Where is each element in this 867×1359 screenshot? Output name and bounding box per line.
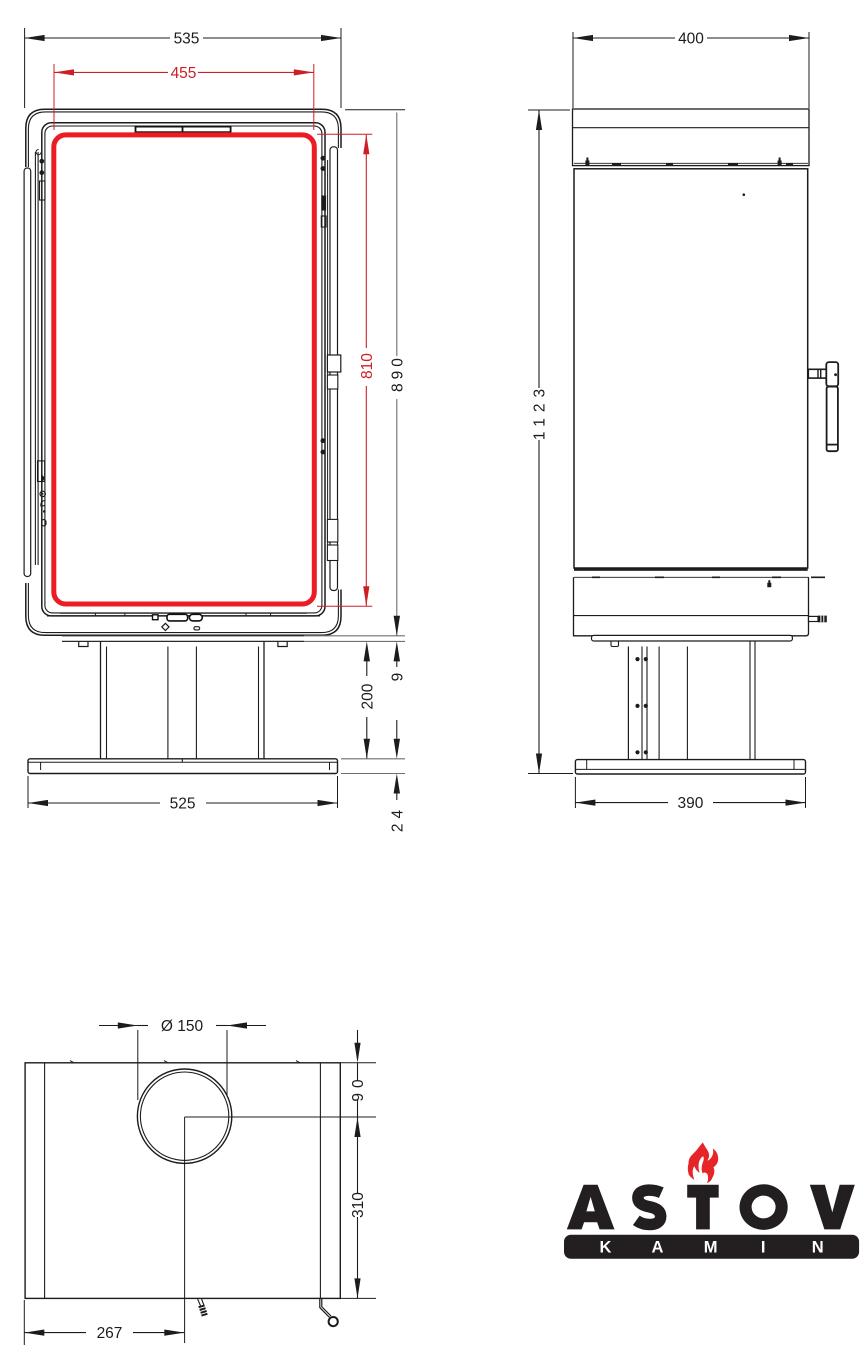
svg-text:Ø 150: Ø 150 [161,1018,204,1035]
svg-text:24: 24 [389,805,406,832]
svg-text:535: 535 [174,31,200,48]
svg-text:9: 9 [389,673,406,682]
svg-text:455: 455 [171,65,197,82]
svg-text:K: K [599,1238,611,1256]
svg-text:200: 200 [359,683,376,709]
svg-text:810: 810 [359,353,376,379]
svg-text:267: 267 [97,1325,123,1342]
svg-text:90: 90 [350,1074,367,1101]
svg-text:400: 400 [678,31,704,48]
svg-text:M: M [704,1238,718,1256]
svg-text:1123: 1123 [532,383,549,440]
svg-text:A: A [652,1238,664,1256]
svg-text:390: 390 [677,795,703,812]
svg-text:310: 310 [350,1192,367,1218]
svg-text:525: 525 [170,796,196,813]
svg-text:N: N [812,1238,824,1256]
svg-text:I: I [761,1238,766,1256]
svg-text:890: 890 [389,354,406,392]
